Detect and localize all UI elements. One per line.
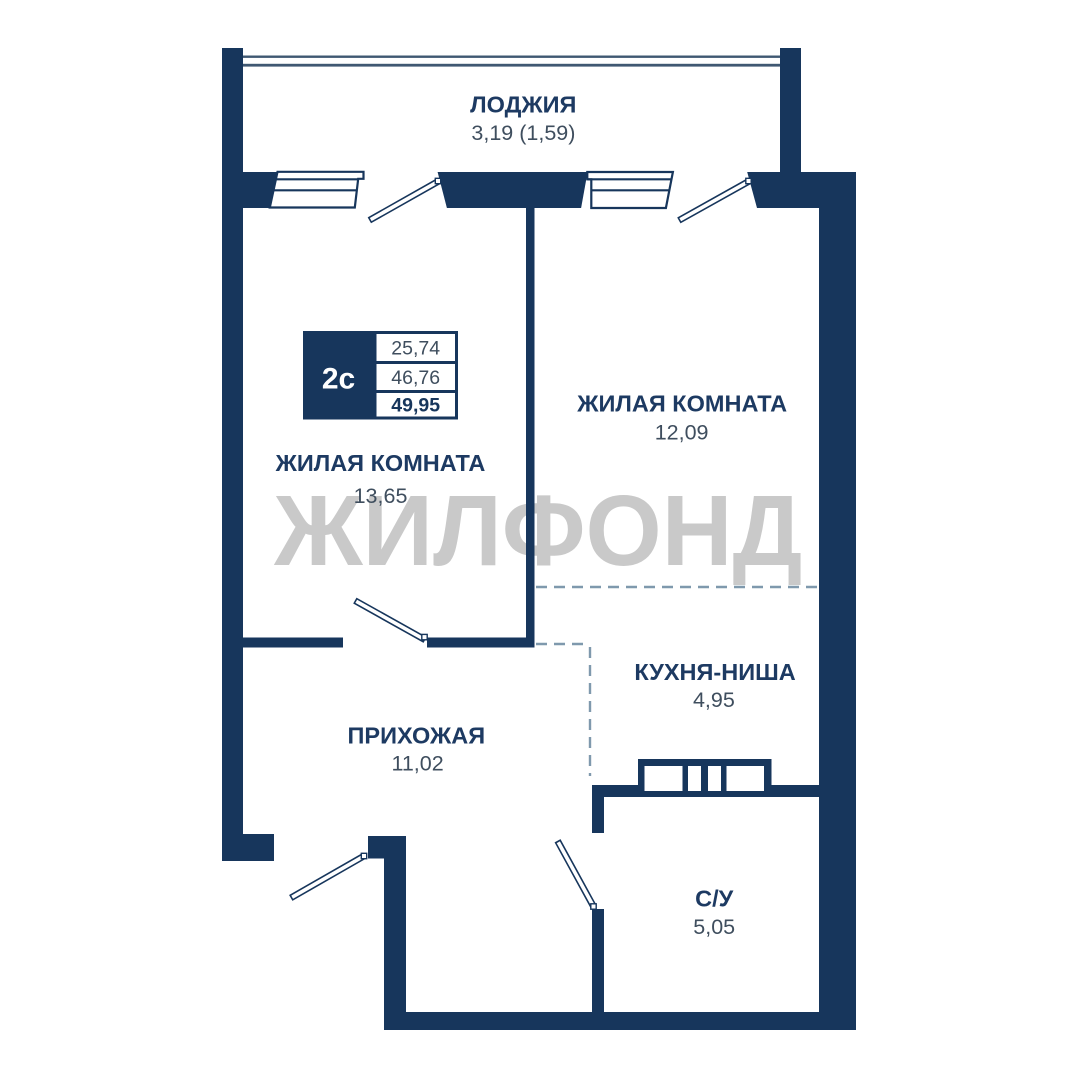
svg-text:4,95: 4,95 — [693, 688, 735, 712]
svg-text:С/У: С/У — [695, 886, 734, 912]
svg-text:ЖИЛАЯ КОМНАТА: ЖИЛАЯ КОМНАТА — [275, 450, 486, 476]
svg-text:ПРИХОЖАЯ: ПРИХОЖАЯ — [348, 723, 486, 749]
svg-text:12,09: 12,09 — [655, 421, 709, 445]
svg-text:46,76: 46,76 — [391, 367, 440, 389]
svg-text:25,74: 25,74 — [391, 338, 440, 360]
svg-text:3,19 (1,59): 3,19 (1,59) — [471, 121, 575, 145]
svg-text:2с: 2с — [322, 363, 355, 396]
svg-text:ЖИЛФОНД: ЖИЛФОНД — [273, 474, 802, 586]
svg-text:КУХНЯ-НИША: КУХНЯ-НИША — [634, 659, 795, 685]
svg-text:49,95: 49,95 — [391, 395, 440, 417]
svg-text:ЛОДЖИЯ: ЛОДЖИЯ — [470, 91, 576, 117]
svg-text:5,05: 5,05 — [693, 915, 735, 939]
svg-text:ЖИЛАЯ КОМНАТА: ЖИЛАЯ КОМНАТА — [576, 390, 787, 416]
svg-text:13,65: 13,65 — [354, 484, 408, 508]
svg-text:11,02: 11,02 — [391, 752, 443, 776]
